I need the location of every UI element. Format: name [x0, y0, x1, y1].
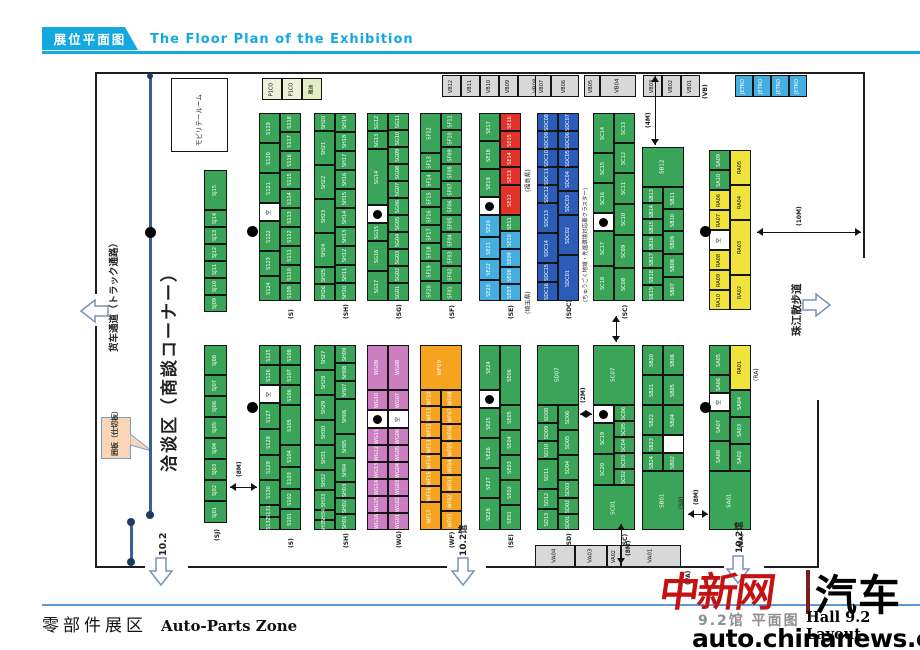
booth-cell: SB23 [642, 435, 663, 453]
booth-cell: SH23 [314, 199, 335, 233]
booth-label: SF09 [449, 149, 454, 161]
booth-cell: SF06 [441, 198, 462, 215]
booth-cell: S113 [280, 208, 301, 227]
island-caption: (SE) [509, 534, 515, 548]
booth-cell: SDC16 [537, 282, 558, 301]
booth-label: SA06 [717, 377, 722, 390]
booth-cell: SH22 [314, 165, 335, 199]
booth-cell: SG13 [367, 131, 388, 149]
booth-cell: SJ13 [204, 227, 227, 244]
booth-label: SH06 [343, 410, 348, 423]
booth-cell: SH09 [335, 345, 356, 363]
booth-island-sf-upper: SF12SF13SF14SF15SF16SF17SF18SF19SF20SF11… [420, 113, 462, 301]
booth-cell: SB18 [642, 268, 663, 285]
plan-label: 洽谈区（商談コーナー） [162, 263, 179, 472]
booth-cell: SD02 [558, 498, 579, 514]
booth-label: VA02 [612, 550, 617, 563]
booth-label: 雅迪 [309, 84, 314, 94]
booth-cell: SDC14 [537, 233, 558, 263]
booth-label: SC04 [622, 438, 627, 451]
booth-cell: SC06 [614, 405, 635, 421]
booth-label: 空 [267, 391, 272, 396]
booth-island-sg-upper: SG12SG13SG14SG15SG16SG17SG11SG10SG09SG08… [367, 113, 409, 301]
booth-cell: SJ10 [204, 278, 227, 295]
plan-label: 10.2 [159, 533, 169, 556]
booth-label: RA08 [717, 253, 722, 266]
booth-label: SJ15 [213, 184, 218, 195]
booth-cell: SE17 [479, 113, 500, 141]
booth-cell: SD01 [558, 514, 579, 530]
booth-cell: JETRO [789, 75, 807, 97]
booth-label: SE14 [508, 152, 513, 165]
booth-cell: SG09 [388, 147, 409, 164]
booth-label: VB11 [468, 79, 473, 92]
booth-cell: SJ05 [204, 417, 227, 438]
booth-cell: SH07 [335, 381, 356, 399]
booth-label: SH11 [343, 267, 348, 280]
booth-island-sh-lower: SH27SH28SH29SH30SH31SH32SH33SH34SH35SH09… [314, 345, 356, 530]
booth-cell: SG06 [388, 198, 409, 215]
booth-cell: WG09 [367, 345, 388, 390]
booth-label: WG06 [396, 429, 401, 444]
booth-cell: WF03 [441, 475, 462, 492]
booth-cell: SA02 [730, 444, 751, 471]
booth-cell: WG10 [367, 390, 388, 410]
booth-cell: SE07 [500, 284, 521, 301]
booth-cell: SH04 [335, 458, 356, 482]
booth-label: SE26 [487, 447, 492, 460]
booth-cell: SE11 [500, 215, 521, 231]
booth-cell: SF01 [441, 283, 462, 301]
booth-island-sb-upper: SB12SB13SB14SB15SB16SB17SB18SB19SB11SB10… [642, 147, 684, 301]
booth-cell: SD10 [537, 441, 558, 459]
booth-cell: SC11 [614, 173, 635, 204]
dim-arrowhead [586, 410, 592, 418]
booth-label: SH03 [343, 483, 348, 496]
booth-label: SDC10 [545, 150, 550, 167]
booth-cell: SD08 [537, 405, 558, 423]
booth-label: SC02 [622, 470, 627, 483]
dimension-arrow [655, 76, 656, 145]
booth-cell: SE03 [500, 455, 521, 480]
booth-cell: VB09 [499, 75, 518, 97]
booth-label: WF02 [449, 494, 454, 508]
booth-cell: VB05 [584, 75, 600, 97]
booth-label: VB04 [615, 79, 621, 94]
booth-cell: SJ02 [204, 480, 227, 501]
booth-cell: WG11 [367, 428, 388, 445]
booth-label: SE19 [487, 177, 492, 190]
booth-label: S101 [288, 513, 293, 526]
booth-label: SDC15 [545, 264, 550, 281]
booth-cell: SDC03 [558, 191, 579, 215]
booth-label: SC19 [601, 432, 606, 445]
booth-label: SE15 [508, 134, 513, 147]
booth-label: SF04 [449, 234, 454, 246]
booth-cell: WG06 [388, 428, 409, 445]
booth-label: SC01 [611, 500, 617, 514]
booth-cell: SC15 [593, 153, 614, 183]
booth-label: SH28 [322, 376, 327, 389]
booth-cell: VB10 [480, 75, 499, 97]
booth-cell: SH01 [335, 514, 356, 530]
booth-label: SJ10 [213, 281, 218, 292]
booth-row-vb-row-2: VB07VB06 [535, 75, 579, 97]
booth-cell: S116 [280, 151, 301, 170]
booth-cell: WF02 [441, 492, 462, 511]
booth-label: SH12 [343, 249, 348, 262]
booth-label: SH29 [322, 401, 327, 414]
booth-cell: SC03 [614, 453, 635, 469]
booth-label: SG16 [375, 249, 380, 262]
booth-label: SF20 [428, 285, 433, 297]
booth-cell: SE02 [500, 480, 521, 505]
booth-cell: WF14 [420, 454, 441, 470]
booth-cell: RA03 [730, 220, 751, 275]
booth-cell: SDC02 [558, 215, 579, 255]
booth-label: SH01 [343, 515, 348, 528]
booth-label: JETRO [741, 78, 746, 93]
booth-cell: VA04 [535, 545, 575, 567]
booth-label: S124 [267, 282, 272, 295]
wall [863, 72, 865, 258]
booth-label: SH26 [322, 286, 327, 299]
booth-cell: S103 [280, 467, 301, 489]
booth-label: SB16 [650, 237, 655, 250]
booth-cell: VB12 [442, 75, 461, 97]
booth-label: SB21 [650, 384, 655, 397]
booth-label: SDC11 [545, 168, 550, 185]
booth-label: JETRO [777, 78, 782, 93]
booth-label: SDC02 [566, 227, 571, 244]
booth-label: SF19 [428, 265, 433, 277]
booth-label: SH08 [343, 365, 348, 378]
booth-label: S105 [288, 419, 293, 432]
booth-cell: SG08 [388, 164, 409, 181]
booth-cell: SH26 [314, 284, 335, 301]
booth-label: SG02 [396, 268, 401, 281]
booth-label: SH19 [343, 116, 348, 129]
booth-label: SG15 [375, 225, 380, 238]
booth-label: SE04 [508, 436, 513, 449]
booth-cell: SDC10 [537, 149, 558, 167]
booth-label: SE25 [487, 417, 492, 430]
booth-label: SA05 [717, 353, 722, 366]
booth-label: VB12 [449, 79, 454, 92]
booth-label: P1CO [270, 82, 275, 96]
booth-label: WG09 [375, 360, 380, 375]
booth-cell: SE26 [479, 438, 500, 468]
booth-label: SE27 [487, 477, 492, 490]
dimension-label: (4M) [646, 112, 652, 128]
pillar-dot [145, 227, 156, 238]
island-caption: (SG) [397, 304, 403, 319]
booth-cell: SG16 [367, 241, 388, 271]
booth-cell: S110 [280, 265, 301, 283]
booth-label: SE03 [508, 461, 513, 474]
booth-cell: SD05 [558, 430, 579, 455]
booth-cell: SDC13 [537, 203, 558, 233]
partition-line-dot [147, 73, 153, 79]
booth-cell: WF13 [420, 438, 441, 454]
booth-cell: SA05 [709, 345, 730, 375]
booth-cell: SH33 [314, 490, 335, 510]
booth-label: SG10 [396, 132, 401, 145]
booth-label: SB07 [671, 283, 676, 296]
booth-label: S126 [267, 369, 272, 382]
booth-cell: S120 [259, 143, 280, 173]
booth-cell: S117 [280, 132, 301, 151]
booth-label: SDC07 [566, 114, 571, 131]
booth-cell: SH24 [314, 233, 335, 267]
booth-cell: SH17 [335, 151, 356, 170]
booth-cell: P1CO [282, 78, 302, 100]
booth-label: WF06 [449, 425, 454, 439]
booth-cell: S102 [280, 489, 301, 509]
booth-cell: SG03 [388, 249, 409, 266]
booth-cell: SF05 [441, 215, 462, 232]
booth-cell: SH19 [335, 113, 356, 132]
pillar-cell [367, 410, 388, 428]
booth-cell: SG02 [388, 266, 409, 283]
booth-cell: SC02 [614, 469, 635, 485]
booth-label: S108 [288, 349, 293, 362]
booth-label: SH18 [343, 135, 348, 148]
booth-label: WF12 [428, 423, 433, 437]
booth-label: RA07 [717, 213, 722, 226]
exit-arrow-right [803, 294, 831, 316]
booth-label: VB01 [688, 79, 693, 92]
booth-cell: VB02 [662, 75, 681, 97]
pillar-cell [367, 205, 388, 223]
booth-cell: SH16 [335, 170, 356, 189]
booth-label: SE02 [508, 486, 513, 499]
booth-cell: SDC04 [558, 167, 579, 191]
booth-label: SE21 [487, 242, 492, 255]
island-caption: (SDC) [567, 300, 573, 319]
booth-cell: SE22 [479, 259, 500, 280]
booth-label: SDC01 [566, 270, 571, 287]
booth-label: WG12 [375, 446, 380, 461]
booth-cell: SC18 [593, 266, 614, 301]
booth-label: WF16 [428, 487, 433, 501]
booth-cell: S122 [259, 221, 280, 251]
booth-cell: WG02 [388, 496, 409, 513]
booth-cell: WF05 [441, 441, 462, 458]
booth-label: SE06 [508, 369, 513, 382]
booth-label: P1CO [290, 82, 295, 96]
booth-cell: S127 [259, 403, 280, 429]
booth-cell: SH13 [335, 227, 356, 246]
booth-cell: SC07 [593, 345, 635, 405]
booth-label: SB11 [671, 192, 676, 205]
booth-label: SA09 [717, 153, 722, 166]
booth-label: WG03 [396, 480, 401, 495]
booth-label: SD05 [566, 436, 571, 449]
booth-label: SC15 [601, 161, 606, 174]
booth-cell: WF12 [420, 422, 441, 438]
booth-label: SH15 [343, 192, 348, 205]
booth-label: VB10 [487, 79, 492, 92]
booth-label: SH14 [343, 211, 348, 224]
booth-label: SF16 [428, 210, 433, 222]
booth-label: SG05 [396, 217, 401, 230]
booth-cell: SC16 [593, 183, 614, 213]
booth-label: WG11 [375, 429, 380, 444]
booth-label: SE23 [487, 284, 492, 297]
booth-cell: SH02 [335, 498, 356, 514]
booth-cell: SE18 [479, 141, 500, 169]
booth-cell: SF12 [420, 113, 441, 153]
booth-label: SJ09 [213, 298, 218, 309]
booth-label: SA10 [717, 173, 722, 186]
booth-cell: SF14 [420, 171, 441, 189]
dim-arrowhead [688, 510, 694, 518]
booth-label: SE18 [487, 149, 492, 162]
booth-cell: SJ06 [204, 396, 227, 417]
booth-cell: S115 [280, 170, 301, 189]
booth-label: SE09 [508, 252, 513, 265]
booth-island-wf-lower: WF09WF10WF11WF12WF13WF14WF15WF16WF17WF08… [420, 345, 462, 530]
booth-label: SB23 [650, 438, 655, 451]
booth-cell: JETRO [771, 75, 789, 97]
island-caption: (SF) [450, 305, 456, 319]
pillar-dot [373, 210, 382, 219]
booth-cell: SA08 [709, 441, 730, 471]
booth-cell: SG04 [388, 232, 409, 249]
booth-label: SG12 [375, 115, 380, 128]
booth-row-va-row: VA04VA03VA02VA01 [535, 545, 681, 567]
booth-label: SC03 [622, 454, 627, 467]
booth-island-s-lower: S125S126空S127S128S129S130S131S132S108S10… [259, 345, 301, 530]
booth-label: SC11 [622, 182, 627, 195]
booth-cell: SH28 [314, 370, 335, 395]
island-caption: (SC) [623, 305, 629, 319]
booth-label: SJ13 [213, 230, 218, 241]
booth-cell: WF07 [441, 407, 462, 424]
booth-cell: S118 [280, 113, 301, 132]
dim-arrowhead [617, 558, 625, 564]
booth-cell: SC12 [614, 143, 635, 173]
booth-label: WG07 [396, 392, 401, 407]
booth-cell: SC13 [614, 113, 635, 143]
booth-label: SB15 [650, 221, 655, 234]
booth-cell: SH18 [335, 132, 356, 151]
booth-label: WF08 [449, 391, 454, 405]
booth-cell: SB22 [642, 405, 663, 435]
booth-cell: SE21 [479, 237, 500, 259]
booth-cell: SB13 [642, 187, 663, 203]
booth-cell: WF04 [441, 458, 462, 475]
booth-label: S123 [267, 257, 272, 270]
booth-cell: WF06 [441, 424, 462, 441]
booth-label: SF11 [449, 115, 454, 127]
booth-label: SE20 [487, 220, 492, 233]
booth-cell: SH29 [314, 395, 335, 420]
booth-label: S106 [288, 389, 293, 402]
booth-cell: SJ11 [204, 261, 227, 278]
booth-cell: WG16 [367, 513, 388, 530]
booth-label: S130 [267, 486, 272, 499]
booth-label: 空 [396, 416, 401, 421]
exit-arrow-left [80, 300, 108, 322]
booth-label: WF15 [428, 471, 433, 485]
booth-cell: SB04 [663, 405, 684, 435]
booth-label: SC08 [622, 278, 627, 291]
island-caption: (WF) [450, 532, 456, 548]
plan-label: 货车通道（トラック通路） [110, 238, 120, 352]
booth-label: SF14 [428, 174, 433, 186]
booth-label: SC06 [622, 406, 627, 419]
booth-label: SB05 [671, 384, 676, 397]
booth-cell: SE04 [500, 430, 521, 455]
booth-label: S107 [288, 369, 293, 382]
booth-label: SJ04 [213, 443, 218, 454]
booth-cell: SA07 [709, 411, 730, 441]
booth-cell: SDC11 [537, 167, 558, 185]
booth-label: RA03 [738, 241, 743, 254]
booth-label: WG14 [375, 480, 380, 495]
booth-cell: SD06 [558, 405, 579, 430]
booth-label: S129 [267, 461, 272, 474]
booth-cell: SDC12 [537, 185, 558, 203]
booth-cell: SC10 [614, 204, 635, 235]
booth-label: SG03 [396, 251, 401, 264]
dim-arrowhead [855, 228, 861, 236]
booth-cell: WF15 [420, 470, 441, 486]
booth-label: SH33 [322, 493, 327, 506]
booth-cell: SD13 [537, 509, 558, 530]
booth-label: SJ02 [213, 485, 218, 496]
booth-label: SA03 [738, 424, 743, 437]
dim-arrowhead [617, 524, 625, 530]
booth-label: S104 [288, 450, 293, 463]
booth-cell: SE19 [479, 169, 500, 197]
booth-label: SA07 [717, 419, 722, 432]
booth-cell: SG07 [388, 181, 409, 198]
booth-label: RA04 [738, 196, 743, 209]
booth-label: SD04 [566, 461, 571, 474]
booth-cell: RA05 [730, 150, 751, 185]
island-caption: (SE) [509, 305, 515, 319]
booth-cell: 空 [259, 385, 280, 403]
booth-cell: SH31 [314, 445, 335, 470]
pillar-dot [700, 226, 711, 237]
booth-cell: RA09 [709, 270, 730, 290]
booth-label: S121 [267, 182, 272, 195]
booth-label: SA04 [738, 397, 743, 410]
booth-cell: SH08 [335, 363, 356, 381]
booth-label: SC17 [601, 242, 606, 255]
booth-label: SA02 [738, 451, 743, 464]
booth-cell: SG05 [388, 215, 409, 232]
row-caption: (VB) [703, 84, 709, 99]
booth-label: SG06 [396, 200, 401, 213]
booth-island-s-upper: S119S120S121空S122S123S124S118S117S116S11… [259, 113, 301, 301]
dim-arrowhead [702, 510, 708, 518]
booth-cell: SB24 [642, 453, 663, 471]
dim-arrowhead [230, 483, 236, 491]
booth-label: SDC08 [545, 114, 550, 131]
booth-cell: SH10 [335, 283, 356, 301]
booth-cell: SE09 [500, 249, 521, 267]
booth-cell: SD07 [537, 345, 579, 405]
booth-cell: SB11 [663, 187, 684, 209]
booth-label: SDC09 [545, 132, 550, 149]
plan-label: 10.2馆 [460, 525, 469, 556]
pillar-dot [373, 415, 382, 424]
booth-label: SDC05 [566, 150, 571, 167]
